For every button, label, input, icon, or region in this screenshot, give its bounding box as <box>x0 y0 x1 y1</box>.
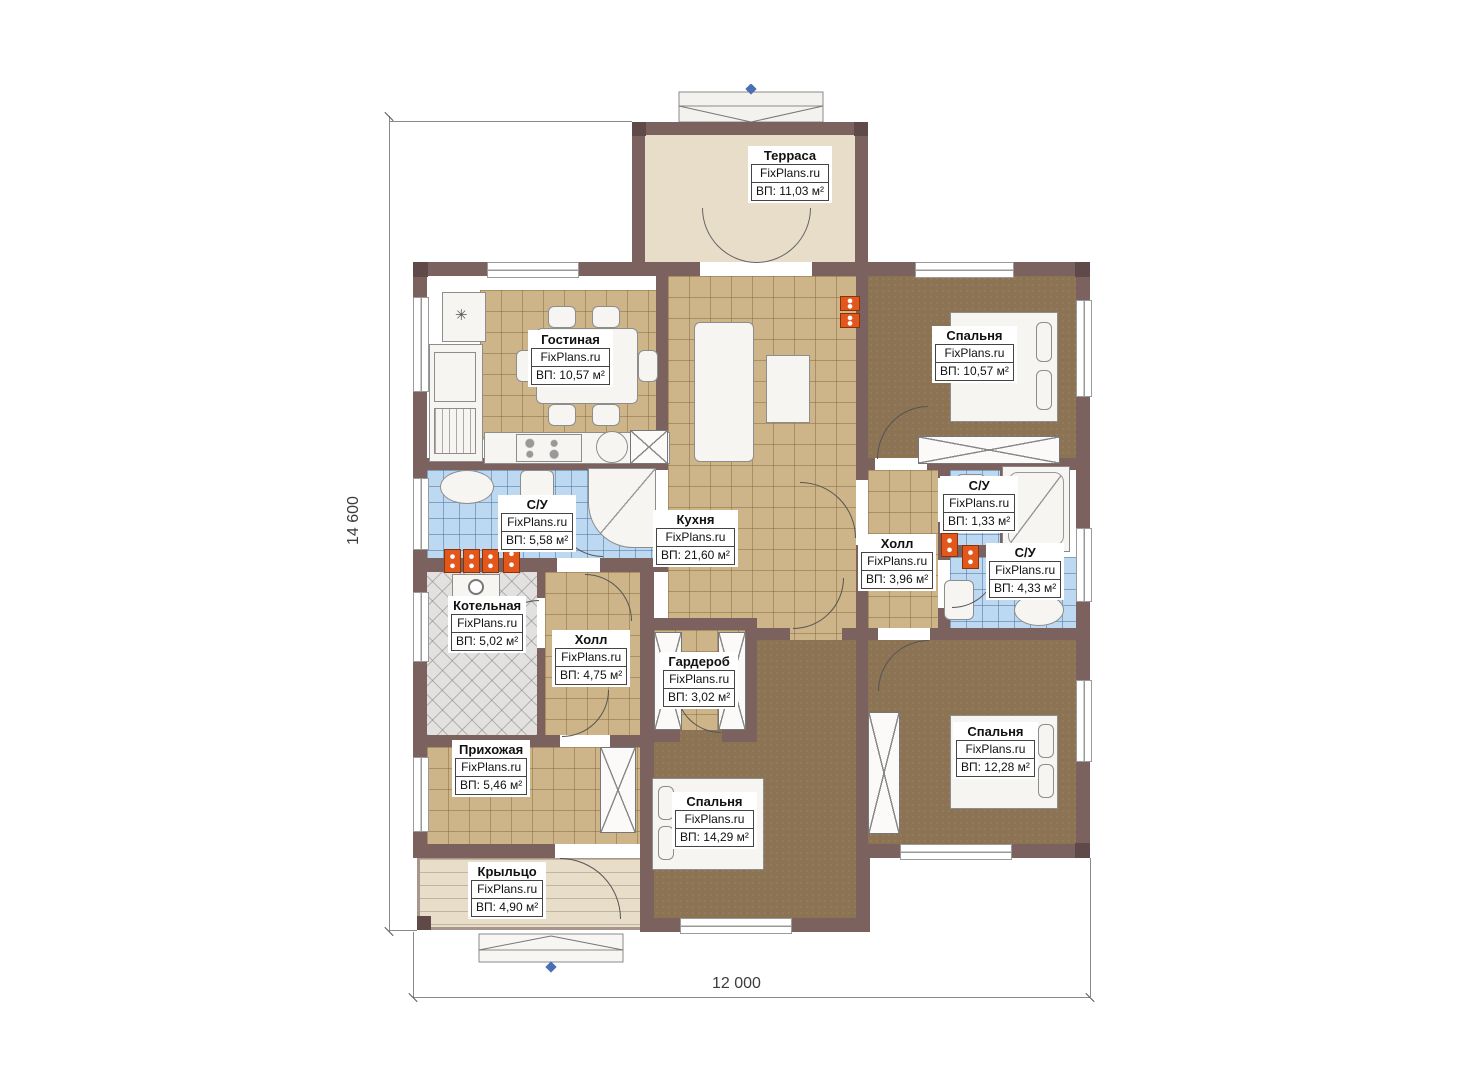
wall-interior <box>930 628 1076 640</box>
wall-interior <box>745 618 757 742</box>
room-label-boiler: Котельная FixPlans.ru ВП: 5,02 м² <box>448 596 526 653</box>
room-area: ВП: 4,33 м² <box>990 579 1060 597</box>
room-watermark: FixPlans.ru <box>657 529 734 546</box>
wall-corner <box>632 122 646 136</box>
window <box>1076 300 1092 397</box>
chair <box>592 404 620 426</box>
radiator <box>444 549 461 573</box>
room-name: Спальня <box>675 794 754 809</box>
freezer-icon: ✳ <box>455 308 468 323</box>
wardrobe-unit <box>868 712 900 834</box>
room-area: ВП: 10,57 м² <box>532 366 609 384</box>
entry-door-opening <box>555 844 640 858</box>
room-area: ВП: 21,60 м² <box>657 546 734 564</box>
radiator <box>941 533 958 557</box>
wall-interior <box>654 618 757 630</box>
wardrobe-unit <box>600 747 636 833</box>
room-label-living: Гостиная FixPlans.ru ВП: 10,57 м² <box>528 330 613 387</box>
room-name: Холл <box>861 536 933 551</box>
kitchen-sink <box>596 431 628 463</box>
wall-interior <box>537 572 545 598</box>
room-label-porch: Крыльцо FixPlans.ru ВП: 4,90 м² <box>468 862 546 919</box>
radiator <box>840 313 860 328</box>
room-name: Спальня <box>956 724 1035 739</box>
room-watermark: FixPlans.ru <box>990 562 1060 579</box>
pillow <box>1036 370 1052 410</box>
room-name: Гардероб <box>663 654 735 669</box>
extension-line <box>1090 858 1091 997</box>
wall-interior <box>868 628 878 640</box>
room-area: ВП: 1,33 м² <box>944 512 1014 530</box>
room-watermark: FixPlans.ru <box>502 514 572 531</box>
room-label-hall-center: Холл FixPlans.ru ВП: 4,75 м² <box>552 630 630 687</box>
sofa <box>694 322 754 462</box>
room-area: ВП: 5,02 м² <box>452 632 522 650</box>
stove <box>516 434 582 462</box>
wall-interior <box>722 730 757 742</box>
terrace-steps <box>678 84 824 124</box>
pillow <box>1038 764 1054 798</box>
wall-interior <box>868 458 875 470</box>
duct-shaft <box>630 430 668 464</box>
chair <box>548 306 576 328</box>
wall-interior <box>757 628 790 640</box>
room-name: Спальня <box>935 328 1014 343</box>
room-watermark: FixPlans.ru <box>944 495 1014 512</box>
extension-line <box>389 121 632 122</box>
room-label-entry: Прихожая FixPlans.ru ВП: 5,46 м² <box>452 740 530 797</box>
room-watermark: FixPlans.ru <box>676 811 753 828</box>
window <box>413 757 429 832</box>
wall <box>632 122 645 263</box>
floor-plan: 14 600 12 000 <box>0 0 1474 1080</box>
window <box>680 918 792 934</box>
room-area: ВП: 4,90 м² <box>472 898 542 916</box>
window <box>413 478 429 550</box>
window <box>1076 528 1092 602</box>
room-label-bedroom-center: Спальня FixPlans.ru ВП: 14,29 м² <box>672 792 757 849</box>
room-watermark: FixPlans.ru <box>472 881 542 898</box>
room-name: Терраса <box>751 148 829 163</box>
room-watermark: FixPlans.ru <box>452 615 522 632</box>
wall-interior <box>537 648 545 735</box>
wardrobe-unit <box>918 436 1060 464</box>
sink-cabinet <box>434 352 476 402</box>
room-label-kitchen: Кухня FixPlans.ru ВП: 21,60 м² <box>653 510 738 567</box>
radiator <box>482 549 499 573</box>
wall <box>855 122 868 263</box>
radiator <box>463 549 480 573</box>
room-label-hall-right: Холл FixPlans.ru ВП: 3,96 м² <box>858 534 936 591</box>
room-name: Холл <box>555 632 627 647</box>
wall-interior <box>654 730 680 742</box>
chair <box>638 350 658 382</box>
room-area: ВП: 5,46 м² <box>456 776 526 794</box>
terrace-door-opening <box>700 262 812 276</box>
room-area: ВП: 4,75 м² <box>556 666 626 684</box>
dimension-height-label: 14 600 <box>345 496 363 545</box>
wall-corner <box>417 916 431 930</box>
room-watermark: FixPlans.ru <box>664 671 734 688</box>
wall-corner <box>1075 262 1090 277</box>
room-name: С/У <box>501 497 573 512</box>
porch-steps <box>478 932 624 974</box>
extension-line <box>389 930 417 931</box>
room-area: ВП: 12,28 м² <box>957 758 1034 776</box>
room-watermark: FixPlans.ru <box>556 649 626 666</box>
room-area: ВП: 14,29 м² <box>676 828 753 846</box>
room-name: Крыльцо <box>471 864 543 879</box>
room-label-bathroom-right: С/У FixPlans.ru ВП: 4,33 м² <box>986 543 1064 600</box>
room-watermark: FixPlans.ru <box>957 741 1034 758</box>
window <box>900 844 1012 860</box>
room-watermark: FixPlans.ru <box>862 553 932 570</box>
room-name: Гостиная <box>531 332 610 347</box>
room-label-terrace: Терраса FixPlans.ru ВП: 11,03 м² <box>748 146 832 203</box>
room-label-bathroom-main: С/У FixPlans.ru ВП: 5,58 м² <box>498 495 576 552</box>
dimension-line-horizontal <box>413 997 1090 998</box>
pillow <box>1036 322 1052 362</box>
chair <box>592 306 620 328</box>
wall-corner <box>1075 843 1090 858</box>
room-name: С/У <box>943 478 1015 493</box>
room-area: ВП: 10,57 м² <box>936 362 1013 380</box>
room-label-wardrobe: Гардероб FixPlans.ru ВП: 3,02 м² <box>660 652 738 709</box>
boiler-icon <box>468 579 484 595</box>
room-label-bedroom-top: Спальня FixPlans.ru ВП: 10,57 м² <box>932 326 1017 383</box>
wall <box>632 122 868 135</box>
dimension-width-label: 12 000 <box>712 975 761 993</box>
pillow <box>1038 724 1054 758</box>
wall-corner <box>413 262 428 277</box>
dishwasher <box>434 408 476 454</box>
bathroom-sink <box>440 470 494 504</box>
room-area: ВП: 3,96 м² <box>862 570 932 588</box>
room-name: С/У <box>989 545 1061 560</box>
room-watermark: FixPlans.ru <box>936 345 1013 362</box>
radiator <box>962 545 979 569</box>
wall-corner <box>854 122 868 136</box>
window <box>1076 680 1092 762</box>
room-name: Кухня <box>656 512 735 527</box>
room-name: Котельная <box>451 598 523 613</box>
chair <box>548 404 576 426</box>
room-area: ВП: 11,03 м² <box>752 182 828 200</box>
room-area: ВП: 5,58 м² <box>502 531 572 549</box>
room-label-bedroom-right: Спальня FixPlans.ru ВП: 12,28 м² <box>953 722 1038 779</box>
room-name: Прихожая <box>455 742 527 757</box>
window <box>413 297 429 392</box>
room-area: ВП: 3,02 м² <box>664 688 734 706</box>
dimension-line-vertical <box>389 116 390 932</box>
radiator <box>840 296 860 311</box>
room-label-wc-small: С/У FixPlans.ru ВП: 1,33 м² <box>940 476 1018 533</box>
room-watermark: FixPlans.ru <box>532 349 609 366</box>
window <box>413 592 429 662</box>
extension-line <box>413 932 414 997</box>
coffee-table <box>766 355 810 423</box>
room-watermark: FixPlans.ru <box>752 165 828 182</box>
window <box>915 262 1014 278</box>
window <box>487 262 579 278</box>
room-watermark: FixPlans.ru <box>456 759 526 776</box>
